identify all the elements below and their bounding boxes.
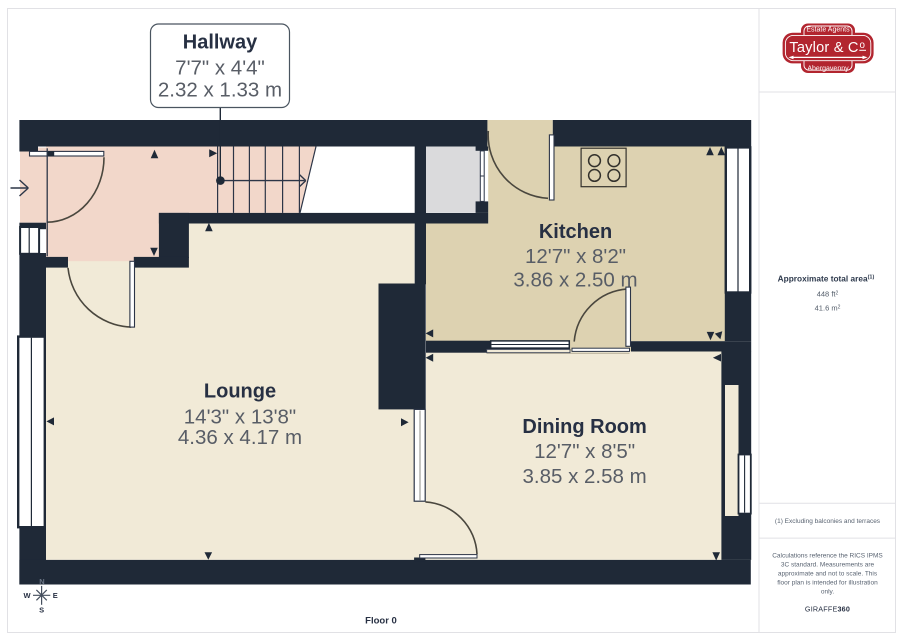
svg-text:Kitchen: Kitchen <box>539 221 612 243</box>
svg-text:Abergavenny: Abergavenny <box>807 66 849 73</box>
svg-text:S: S <box>39 606 44 615</box>
svg-text:only.: only. <box>821 589 834 596</box>
svg-text:3.85 x 2.58 m: 3.85 x 2.58 m <box>522 465 646 488</box>
svg-text:12'7" x 8'5": 12'7" x 8'5" <box>534 440 635 463</box>
svg-text:Hallway: Hallway <box>183 31 258 53</box>
svg-text:Approximate total area(1): Approximate total area(1) <box>778 274 875 284</box>
svg-text:7'7" x 4'4": 7'7" x 4'4" <box>175 57 265 80</box>
svg-text:3C standard. Measurements are: 3C standard. Measurements are <box>781 562 875 569</box>
svg-text:3.86 x 2.50 m: 3.86 x 2.50 m <box>513 268 637 291</box>
svg-text:Dining Room: Dining Room <box>522 416 646 438</box>
svg-text:E: E <box>53 591 58 600</box>
svg-text:4.36 x 4.17 m: 4.36 x 4.17 m <box>178 426 302 449</box>
svg-text:Lounge: Lounge <box>204 381 276 403</box>
svg-text:floor plan is intended for ill: floor plan is intended for illustration <box>777 580 878 587</box>
svg-text:41.6 m2: 41.6 m2 <box>815 304 841 313</box>
svg-text:Taylor & C: Taylor & C <box>789 40 858 56</box>
svg-text:W: W <box>23 591 31 600</box>
svg-text:Estate Agents: Estate Agents <box>806 27 850 34</box>
svg-text:o: o <box>860 40 866 51</box>
svg-text:12'7" x 8'2": 12'7" x 8'2" <box>525 245 626 268</box>
svg-text:2.32 x 1.33 m: 2.32 x 1.33 m <box>158 79 282 102</box>
svg-text:448 ft2: 448 ft2 <box>817 290 839 299</box>
svg-text:approximate and not to scale.: approximate and not to scale. This <box>778 571 878 578</box>
svg-text:(1) Excluding balconies and te: (1) Excluding balconies and terraces <box>775 518 881 525</box>
svg-text:Floor 0: Floor 0 <box>365 616 397 627</box>
svg-text:Calculations reference the RIC: Calculations reference the RICS IPMS <box>772 553 883 560</box>
svg-text:N: N <box>39 577 44 586</box>
svg-text:GIRAFFE360: GIRAFFE360 <box>805 605 850 614</box>
